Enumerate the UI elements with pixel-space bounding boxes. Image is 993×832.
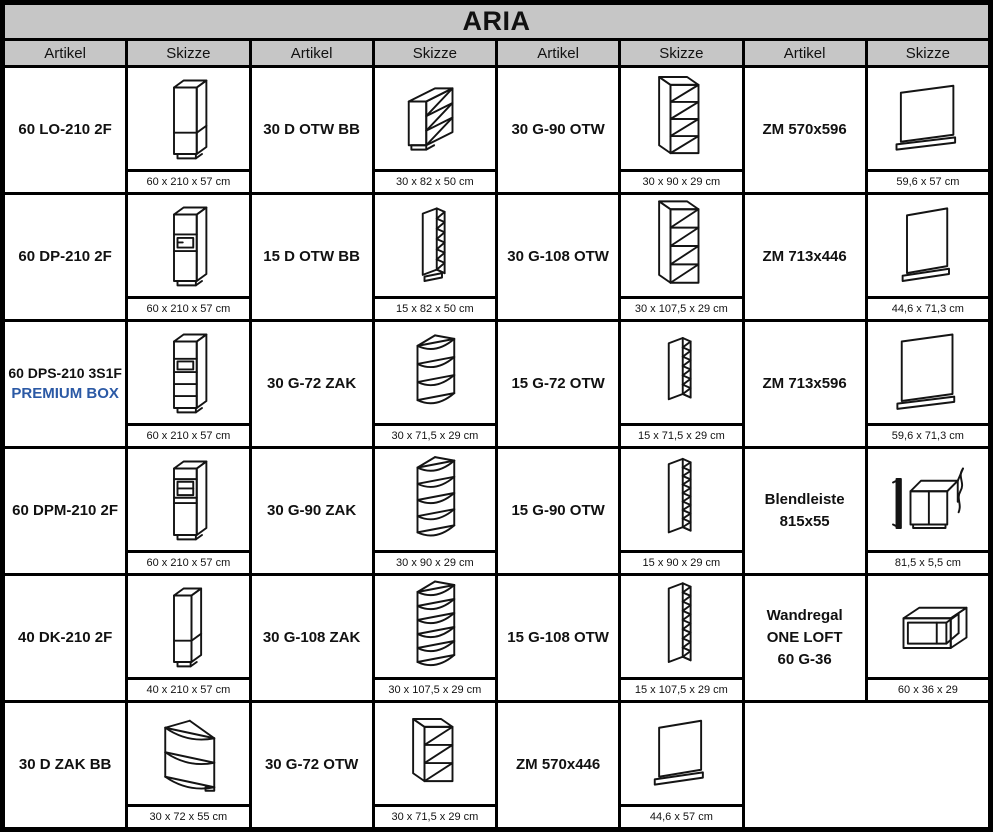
dimensions-label: 60 x 210 x 57 cm — [128, 423, 248, 446]
skizze-cell: 30 x 90 x 29 cm — [621, 68, 741, 192]
wall-shelf-frame-sketch-icon — [868, 576, 988, 677]
corner-shelf-sketch-icon — [375, 322, 495, 423]
cover-panel-sketch-icon — [868, 322, 988, 423]
skizze-cell: 15 x 90 x 29 cm — [621, 449, 741, 573]
corner-shelf-sketch-icon — [375, 576, 495, 677]
skizze-cell: 40 x 210 x 57 cm — [128, 576, 248, 700]
empty-cell — [745, 703, 989, 827]
artikel-label: ONE LOFT — [767, 627, 843, 649]
artikel-label: ZM 570x446 — [516, 754, 600, 776]
artikel-cell: 30 D ZAK BB — [5, 703, 125, 827]
skizze-cell: 15 x 82 x 50 cm — [375, 195, 495, 319]
artikel-cell: 15 G-108 OTW — [498, 576, 618, 700]
artikel-cell: ZM 570x596 — [745, 68, 865, 192]
skizze-cell: 60 x 210 x 57 cm — [128, 68, 248, 192]
tall-cabinet-sketch-icon — [128, 195, 248, 296]
artikel-cell: 30 G-90 OTW — [498, 68, 618, 192]
artikel-label: 30 G-108 OTW — [507, 246, 609, 268]
dimensions-label: 59,6 x 57 cm — [868, 169, 988, 192]
artikel-cell: Blendleiste815x55 — [745, 449, 865, 573]
wall-open-shelf-sketch-icon — [375, 703, 495, 804]
dimensions-label: 30 x 107,5 x 29 cm — [375, 677, 495, 700]
artikel-cell: 30 D OTW BB — [252, 68, 372, 192]
skizze-cell: 60 x 210 x 57 cm — [128, 195, 248, 319]
artikel-label: 60 DP-210 2F — [18, 246, 111, 268]
artikel-label: ZM 713x596 — [763, 373, 847, 395]
artikel-label: 40 DK-210 2F — [18, 627, 112, 649]
cover-panel-sketch-icon — [868, 195, 988, 296]
artikel-label: ZM 713x446 — [763, 246, 847, 268]
tall-cabinet-sketch-icon — [128, 68, 248, 169]
skizze-cell: 59,6 x 71,3 cm — [868, 322, 988, 446]
corner-base-shelf-sketch-icon — [128, 703, 248, 804]
skizze-cell: 59,6 x 57 cm — [868, 68, 988, 192]
artikel-cell: 60 DP-210 2F — [5, 195, 125, 319]
column-header-skizze: Skizze — [128, 41, 248, 65]
skizze-cell: 44,6 x 71,3 cm — [868, 195, 988, 319]
artikel-cell: 30 G-72 OTW — [252, 703, 372, 827]
dimensions-label: 30 x 71,5 x 29 cm — [375, 423, 495, 446]
artikel-cell: 40 DK-210 2F — [5, 576, 125, 700]
skizze-cell: 30 x 107,5 x 29 cm — [621, 195, 741, 319]
skizze-cell: 81,5 x 5,5 cm — [868, 449, 988, 573]
dimensions-label: 40 x 210 x 57 cm — [128, 677, 248, 700]
artikel-cell: WandregalONE LOFT60 G-36 — [745, 576, 865, 700]
artikel-cell: 30 G-90 ZAK — [252, 449, 372, 573]
catalog-table: ARIA ArtikelSkizzeArtikelSkizzeArtikelSk… — [0, 0, 993, 832]
dimensions-label: 15 x 107,5 x 29 cm — [621, 677, 741, 700]
narrow-open-shelf-sketch-icon — [375, 195, 495, 296]
skizze-cell: 30 x 107,5 x 29 cm — [375, 576, 495, 700]
narrow-open-shelf-sketch-icon — [621, 322, 741, 423]
skizze-cell: 30 x 72 x 55 cm — [128, 703, 248, 827]
artikel-cell: 30 G-108 OTW — [498, 195, 618, 319]
artikel-cell: 60 DPM-210 2F — [5, 449, 125, 573]
skizze-cell: 15 x 107,5 x 29 cm — [621, 576, 741, 700]
dimensions-label: 30 x 107,5 x 29 cm — [621, 296, 741, 319]
column-header-artikel: Artikel — [745, 41, 865, 65]
artikel-cell: 30 G-108 ZAK — [252, 576, 372, 700]
artikel-cell: ZM 713x596 — [745, 322, 865, 446]
cover-panel-sketch-icon — [621, 703, 741, 804]
artikel-label: 60 LO-210 2F — [18, 119, 111, 141]
dimensions-label: 30 x 71,5 x 29 cm — [375, 804, 495, 827]
artikel-label: 30 G-72 ZAK — [267, 373, 356, 395]
skizze-cell: 60 x 210 x 57 cm — [128, 449, 248, 573]
dimensions-label: 60 x 210 x 57 cm — [128, 296, 248, 319]
blendleiste-sketch-icon — [868, 449, 988, 550]
artikel-cell: ZM 713x446 — [745, 195, 865, 319]
dimensions-label: 60 x 36 x 29 — [868, 677, 988, 700]
artikel-cell: 15 G-72 OTW — [498, 322, 618, 446]
artikel-label: 30 G-108 ZAK — [263, 627, 361, 649]
dimensions-label: 60 x 210 x 57 cm — [128, 550, 248, 573]
skizze-cell: 15 x 71,5 x 29 cm — [621, 322, 741, 446]
dimensions-label: 15 x 82 x 50 cm — [375, 296, 495, 319]
dimensions-label: 30 x 90 x 29 cm — [621, 169, 741, 192]
artikel-label: 30 D OTW BB — [263, 119, 360, 141]
artikel-premium-label: PREMIUM BOX — [11, 383, 119, 405]
wall-open-shelf-sketch-icon — [621, 68, 741, 169]
column-header-artikel: Artikel — [498, 41, 618, 65]
dimensions-label: 60 x 210 x 57 cm — [128, 169, 248, 192]
page-title: ARIA — [5, 5, 988, 38]
dimensions-label: 59,6 x 71,3 cm — [868, 423, 988, 446]
dimensions-label: 15 x 90 x 29 cm — [621, 550, 741, 573]
column-header-artikel: Artikel — [5, 41, 125, 65]
skizze-cell: 30 x 71,5 x 29 cm — [375, 322, 495, 446]
skizze-cell: 30 x 90 x 29 cm — [375, 449, 495, 573]
dimensions-label: 15 x 71,5 x 29 cm — [621, 423, 741, 446]
artikel-label: 30 G-90 ZAK — [267, 500, 356, 522]
dimensions-label: 30 x 82 x 50 cm — [375, 169, 495, 192]
wall-open-shelf-sketch-icon — [621, 195, 741, 296]
narrow-open-shelf-sketch-icon — [621, 576, 741, 677]
skizze-cell: 60 x 210 x 57 cm — [128, 322, 248, 446]
artikel-cell: 15 D OTW BB — [252, 195, 372, 319]
artikel-cell: ZM 570x446 — [498, 703, 618, 827]
artikel-label: Blendleiste — [765, 489, 845, 511]
artikel-label: 15 D OTW BB — [263, 246, 360, 268]
artikel-label: ZM 570x596 — [763, 119, 847, 141]
column-header-artikel: Artikel — [252, 41, 372, 65]
artikel-label: 15 G-72 OTW — [511, 373, 604, 395]
base-open-shelf-sketch-icon — [375, 68, 495, 169]
artikel-cell: 30 G-72 ZAK — [252, 322, 372, 446]
artikel-cell: 60 DPS-210 3S1FPREMIUM BOX — [5, 322, 125, 446]
tall-cabinet-sketch-icon — [128, 576, 248, 677]
narrow-open-shelf-sketch-icon — [621, 449, 741, 550]
cover-panel-sketch-icon — [868, 68, 988, 169]
skizze-cell: 30 x 71,5 x 29 cm — [375, 703, 495, 827]
dimensions-label: 30 x 90 x 29 cm — [375, 550, 495, 573]
dimensions-label: 30 x 72 x 55 cm — [128, 804, 248, 827]
artikel-label: 60 DPS-210 3S1F — [8, 363, 122, 383]
artikel-label: 15 G-108 OTW — [507, 627, 609, 649]
tall-cabinet-sketch-icon — [128, 449, 248, 550]
artikel-label: 30 D ZAK BB — [19, 754, 112, 776]
dimensions-label: 44,6 x 71,3 cm — [868, 296, 988, 319]
artikel-label: 15 G-90 OTW — [511, 500, 604, 522]
tall-cabinet-sketch-icon — [128, 322, 248, 423]
artikel-cell: 15 G-90 OTW — [498, 449, 618, 573]
column-header-skizze: Skizze — [375, 41, 495, 65]
artikel-label: Wandregal — [767, 605, 843, 627]
artikel-label: 60 DPM-210 2F — [12, 500, 118, 522]
skizze-cell: 30 x 82 x 50 cm — [375, 68, 495, 192]
dimensions-label: 81,5 x 5,5 cm — [868, 550, 988, 573]
skizze-cell: 44,6 x 57 cm — [621, 703, 741, 827]
dimensions-label: 44,6 x 57 cm — [621, 804, 741, 827]
skizze-cell: 60 x 36 x 29 — [868, 576, 988, 700]
artikel-label: 30 G-72 OTW — [265, 754, 358, 776]
artikel-cell: 60 LO-210 2F — [5, 68, 125, 192]
artikel-label: 815x55 — [780, 511, 830, 533]
column-header-skizze: Skizze — [868, 41, 988, 65]
artikel-label: 30 G-90 OTW — [511, 119, 604, 141]
artikel-label: 60 G-36 — [778, 649, 832, 671]
corner-shelf-sketch-icon — [375, 449, 495, 550]
column-header-skizze: Skizze — [621, 41, 741, 65]
